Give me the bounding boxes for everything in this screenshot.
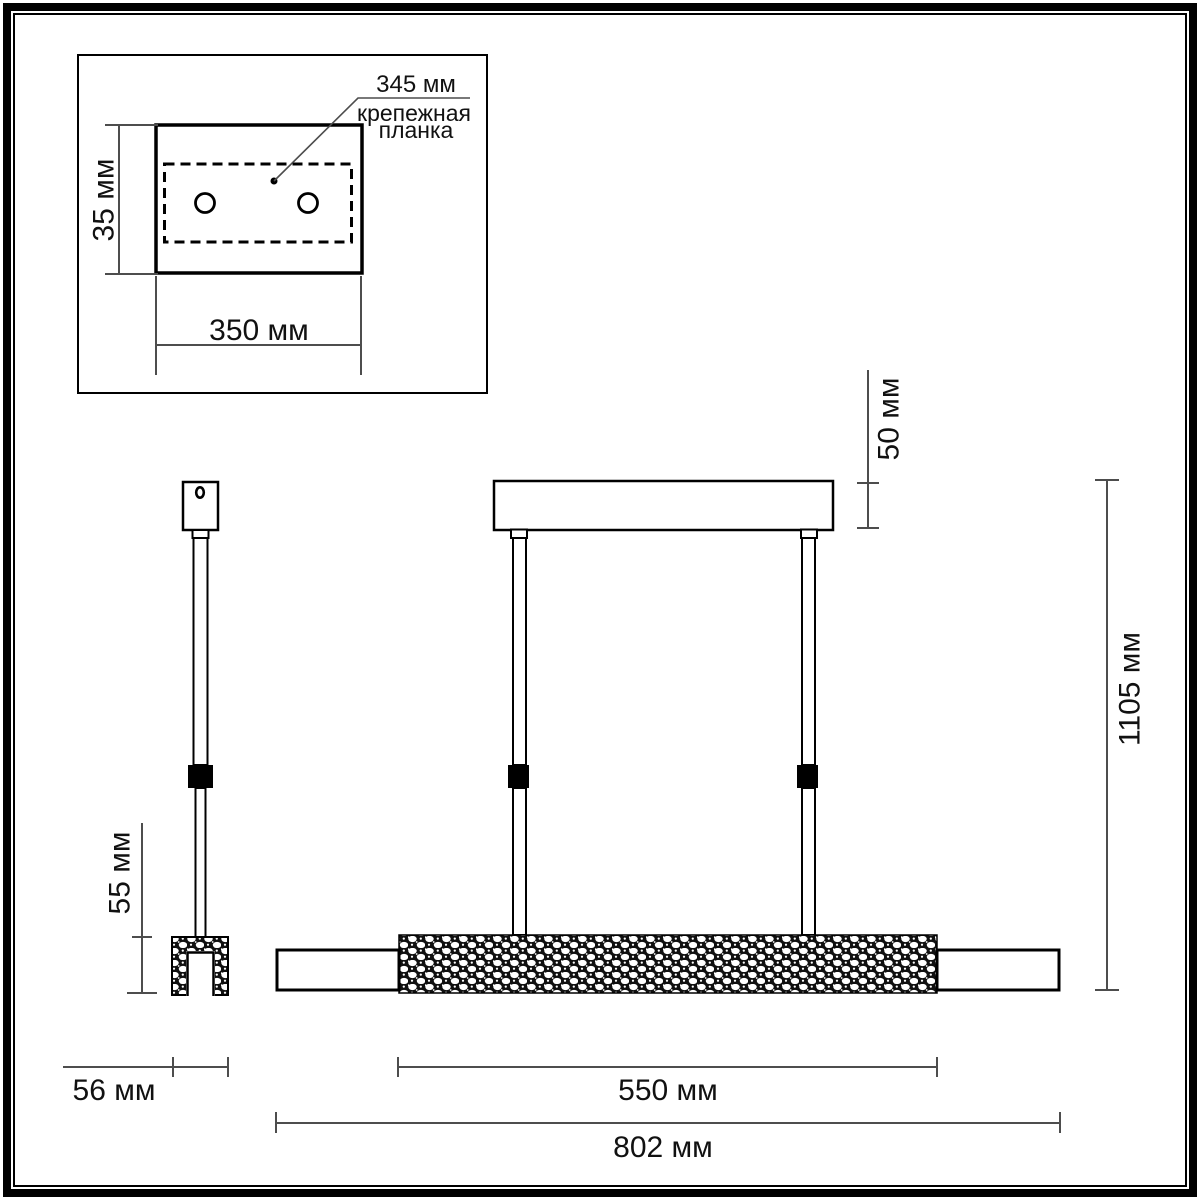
canopy-height-label: 50 мм	[873, 378, 906, 461]
suspension-rod-side-upper	[194, 538, 208, 765]
lit-section-width-label: 550 мм	[618, 1074, 718, 1107]
drawing-sheet: 345 мм крепежная планка 35 мм 350 мм	[0, 0, 1200, 1200]
rod-collar-right	[801, 530, 817, 539]
suspension-rod-left-upper	[513, 538, 526, 765]
light-bar-front	[399, 935, 937, 993]
bar-height-label: 55 мм	[104, 832, 137, 915]
rod-connector-side	[188, 765, 213, 788]
canopy-front	[494, 481, 833, 530]
technical-drawing-canvas: 345 мм крепежная планка 35 мм 350 мм	[0, 0, 1200, 1200]
side-view: 55 мм 56 мм	[63, 482, 228, 1107]
rod-connector-left	[508, 765, 529, 788]
light-bar-side-opening	[186, 951, 215, 997]
inset-detail-view: 345 мм крепежная планка 35 мм 350 мм	[78, 55, 487, 393]
rod-collar-side	[193, 530, 209, 538]
suspension-rod-right-upper	[802, 538, 815, 765]
plate-height-label: 35 мм	[88, 159, 121, 242]
suspension-rod-side-lower	[196, 788, 206, 937]
end-cap-right	[937, 950, 1059, 990]
front-view: 50 мм 1105 мм 550 мм 802 мм	[276, 370, 1147, 1164]
rod-collar-left	[511, 530, 527, 539]
overall-width-label: 802 мм	[613, 1131, 713, 1164]
bar-width-label: 56 мм	[73, 1074, 156, 1107]
dimension-overall-width	[276, 1112, 1060, 1133]
suspension-rod-left-lower	[513, 788, 526, 935]
plate-width-label: 350 мм	[209, 314, 309, 347]
overall-height-label: 1105 мм	[1114, 632, 1147, 746]
end-cap-left	[277, 950, 399, 990]
rod-connector-right	[797, 765, 818, 788]
mount-keyhole	[196, 487, 204, 497]
mounting-plate	[156, 125, 362, 273]
suspension-rod-right-lower	[802, 788, 815, 935]
callout-value-label: 345 мм	[376, 71, 456, 98]
callout-caption-line2: планка	[379, 117, 454, 143]
mounting-hole-left	[196, 194, 215, 213]
mounting-hole-right	[299, 194, 318, 213]
